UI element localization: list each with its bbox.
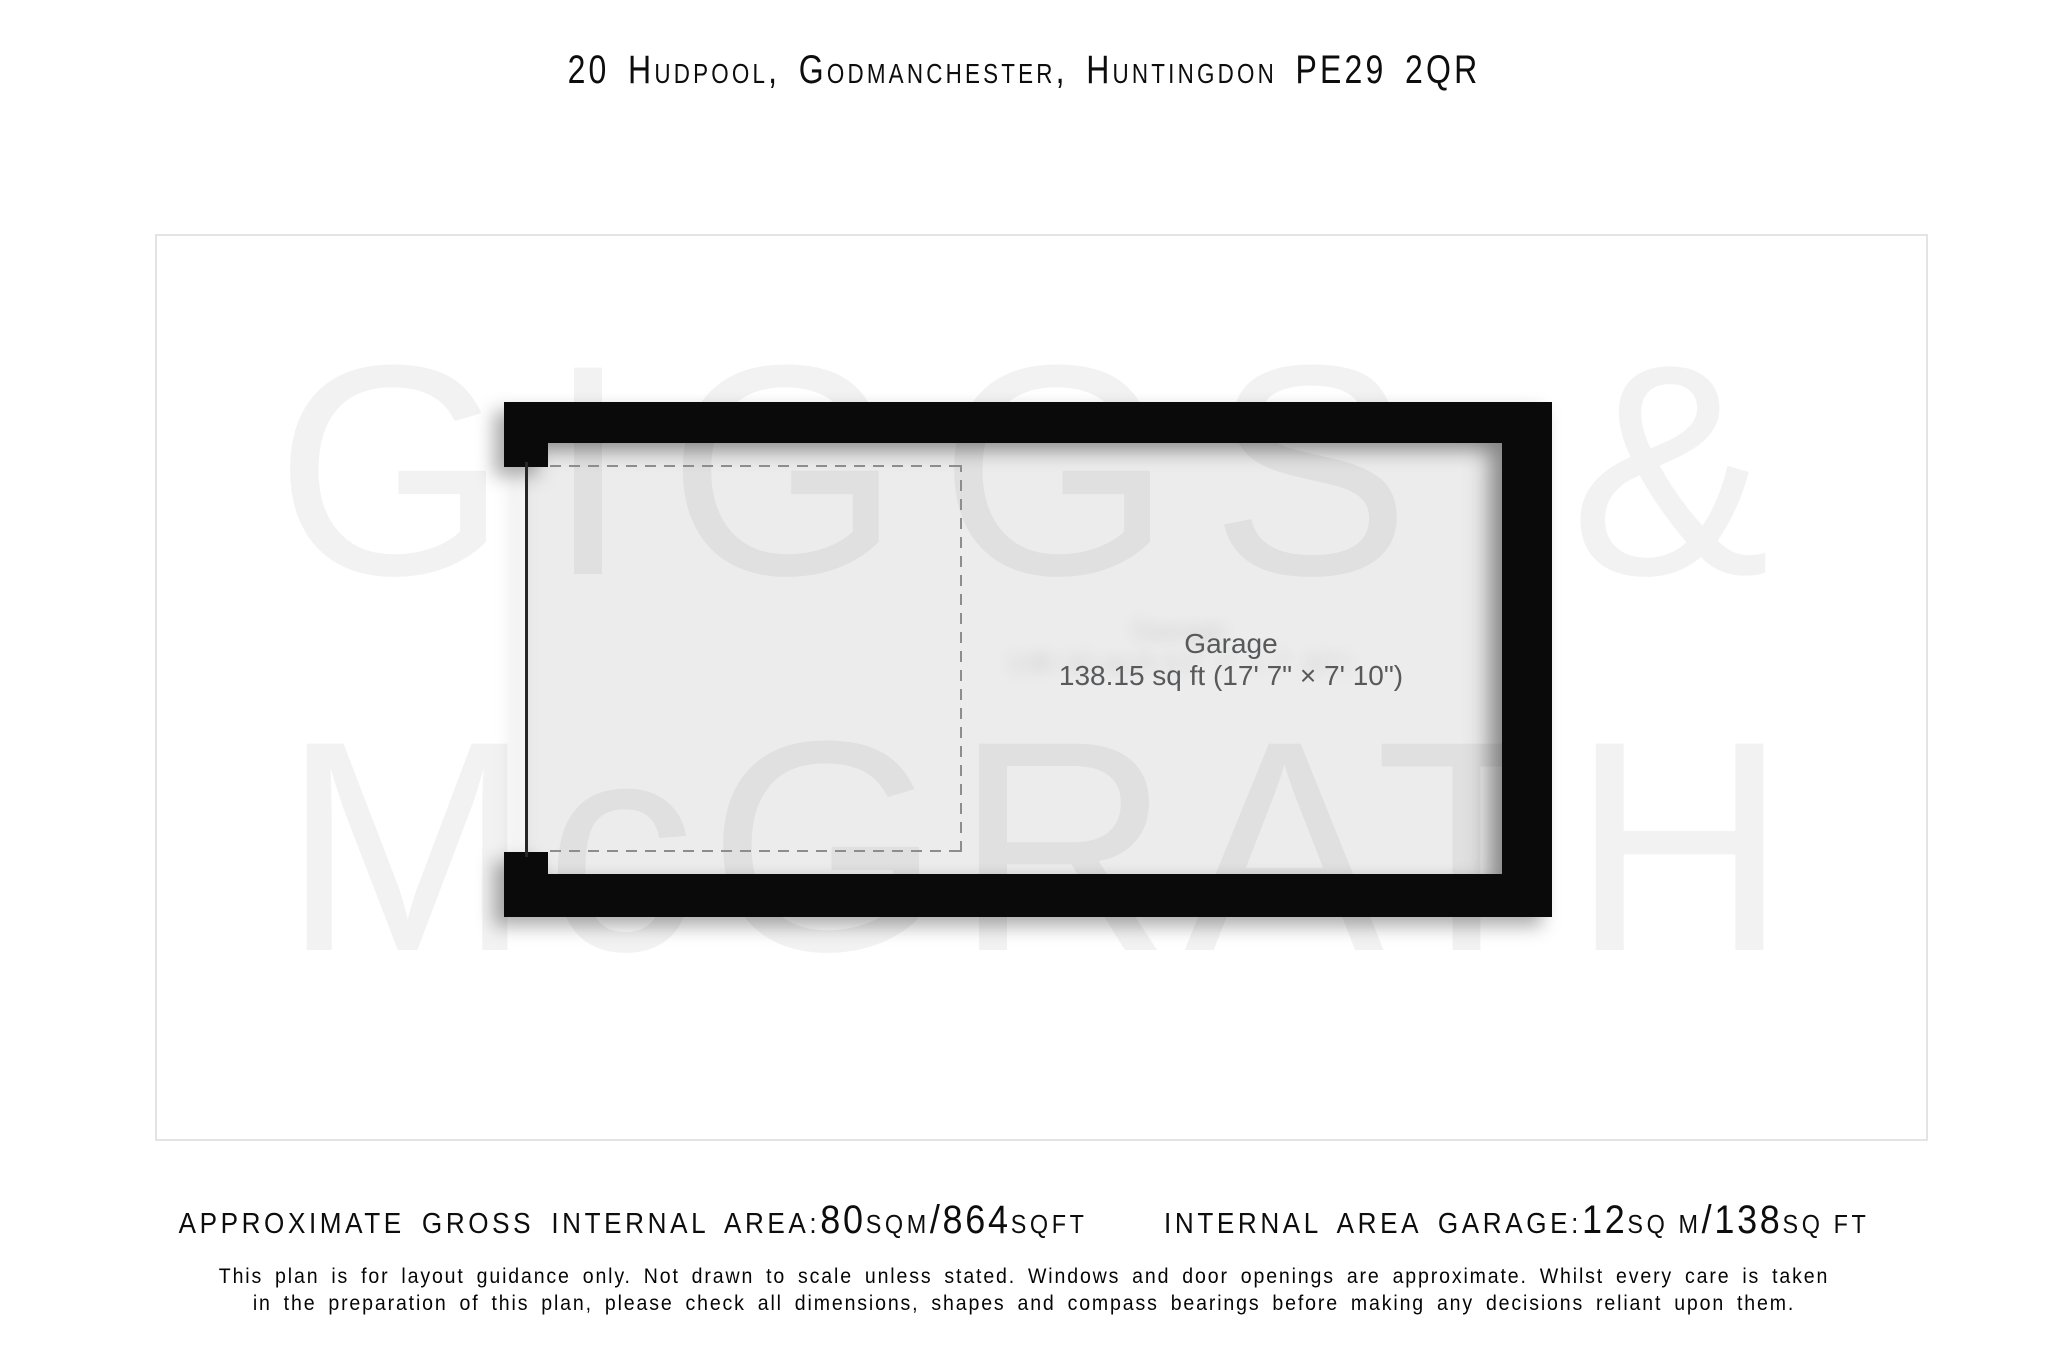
page-title: 20 Hudpool, Godmanchester, Huntingdon PE… <box>205 48 1843 93</box>
gross-area-sqm-value: 80 <box>820 1198 865 1243</box>
gross-area-slash: / <box>930 1198 943 1243</box>
dashed-line-bottom <box>550 850 962 852</box>
room-label: Garage 138.15 sq ft (17' 7" × 7' 10") <box>960 628 1502 692</box>
disclaimer-line-1: This plan is for layout guidance only. N… <box>72 1263 1977 1290</box>
gross-internal-area-label: Approximate Gross Internal Area: <box>179 1208 821 1241</box>
garage-area-sqft-unit: sq ft <box>1783 1209 1870 1240</box>
wall-top <box>504 402 1552 443</box>
disclaimer: This plan is for layout guidance only. N… <box>72 1263 1977 1317</box>
room-name: Garage <box>960 628 1502 660</box>
plan-frame: GIGGS & McGRATH Garage 138.15 sq ft (17'… <box>155 234 1928 1141</box>
gross-area-sqft-unit: sqft <box>1011 1209 1088 1240</box>
garage-area-sqm-value: 12 <box>1582 1198 1627 1243</box>
garage-floorplan: Garage 138.15 sq ft (17' 7" × 7' 10") <box>504 402 1552 917</box>
garage-area-sqm-unit: sq m <box>1627 1209 1701 1240</box>
garage-area-sqft-value: 138 <box>1714 1198 1782 1243</box>
garage-internal-area: Internal Area Garage: 12 sq m / 138 sq f… <box>1164 1198 1869 1243</box>
disclaimer-line-2: in the preparation of this plan, please … <box>72 1290 1977 1317</box>
wall-right <box>1502 402 1552 917</box>
gross-area-sqm-unit: sqm <box>866 1209 930 1240</box>
floorplan-page: 20 Hudpool, Godmanchester, Huntingdon PE… <box>0 0 2048 1365</box>
garage-area-label: Internal Area Garage: <box>1164 1208 1582 1241</box>
room-dimensions: 138.15 sq ft (17' 7" × 7' 10") <box>960 660 1502 692</box>
gross-area-sqft-value: 864 <box>943 1198 1011 1243</box>
area-summary: Approximate Gross Internal Area: 80 sqm … <box>102 1198 1945 1243</box>
dashed-line-top <box>550 465 962 467</box>
gross-internal-area: Approximate Gross Internal Area: 80 sqm … <box>179 1198 1088 1243</box>
garage-area-slash: / <box>1702 1198 1715 1243</box>
wall-bottom <box>504 874 1552 917</box>
